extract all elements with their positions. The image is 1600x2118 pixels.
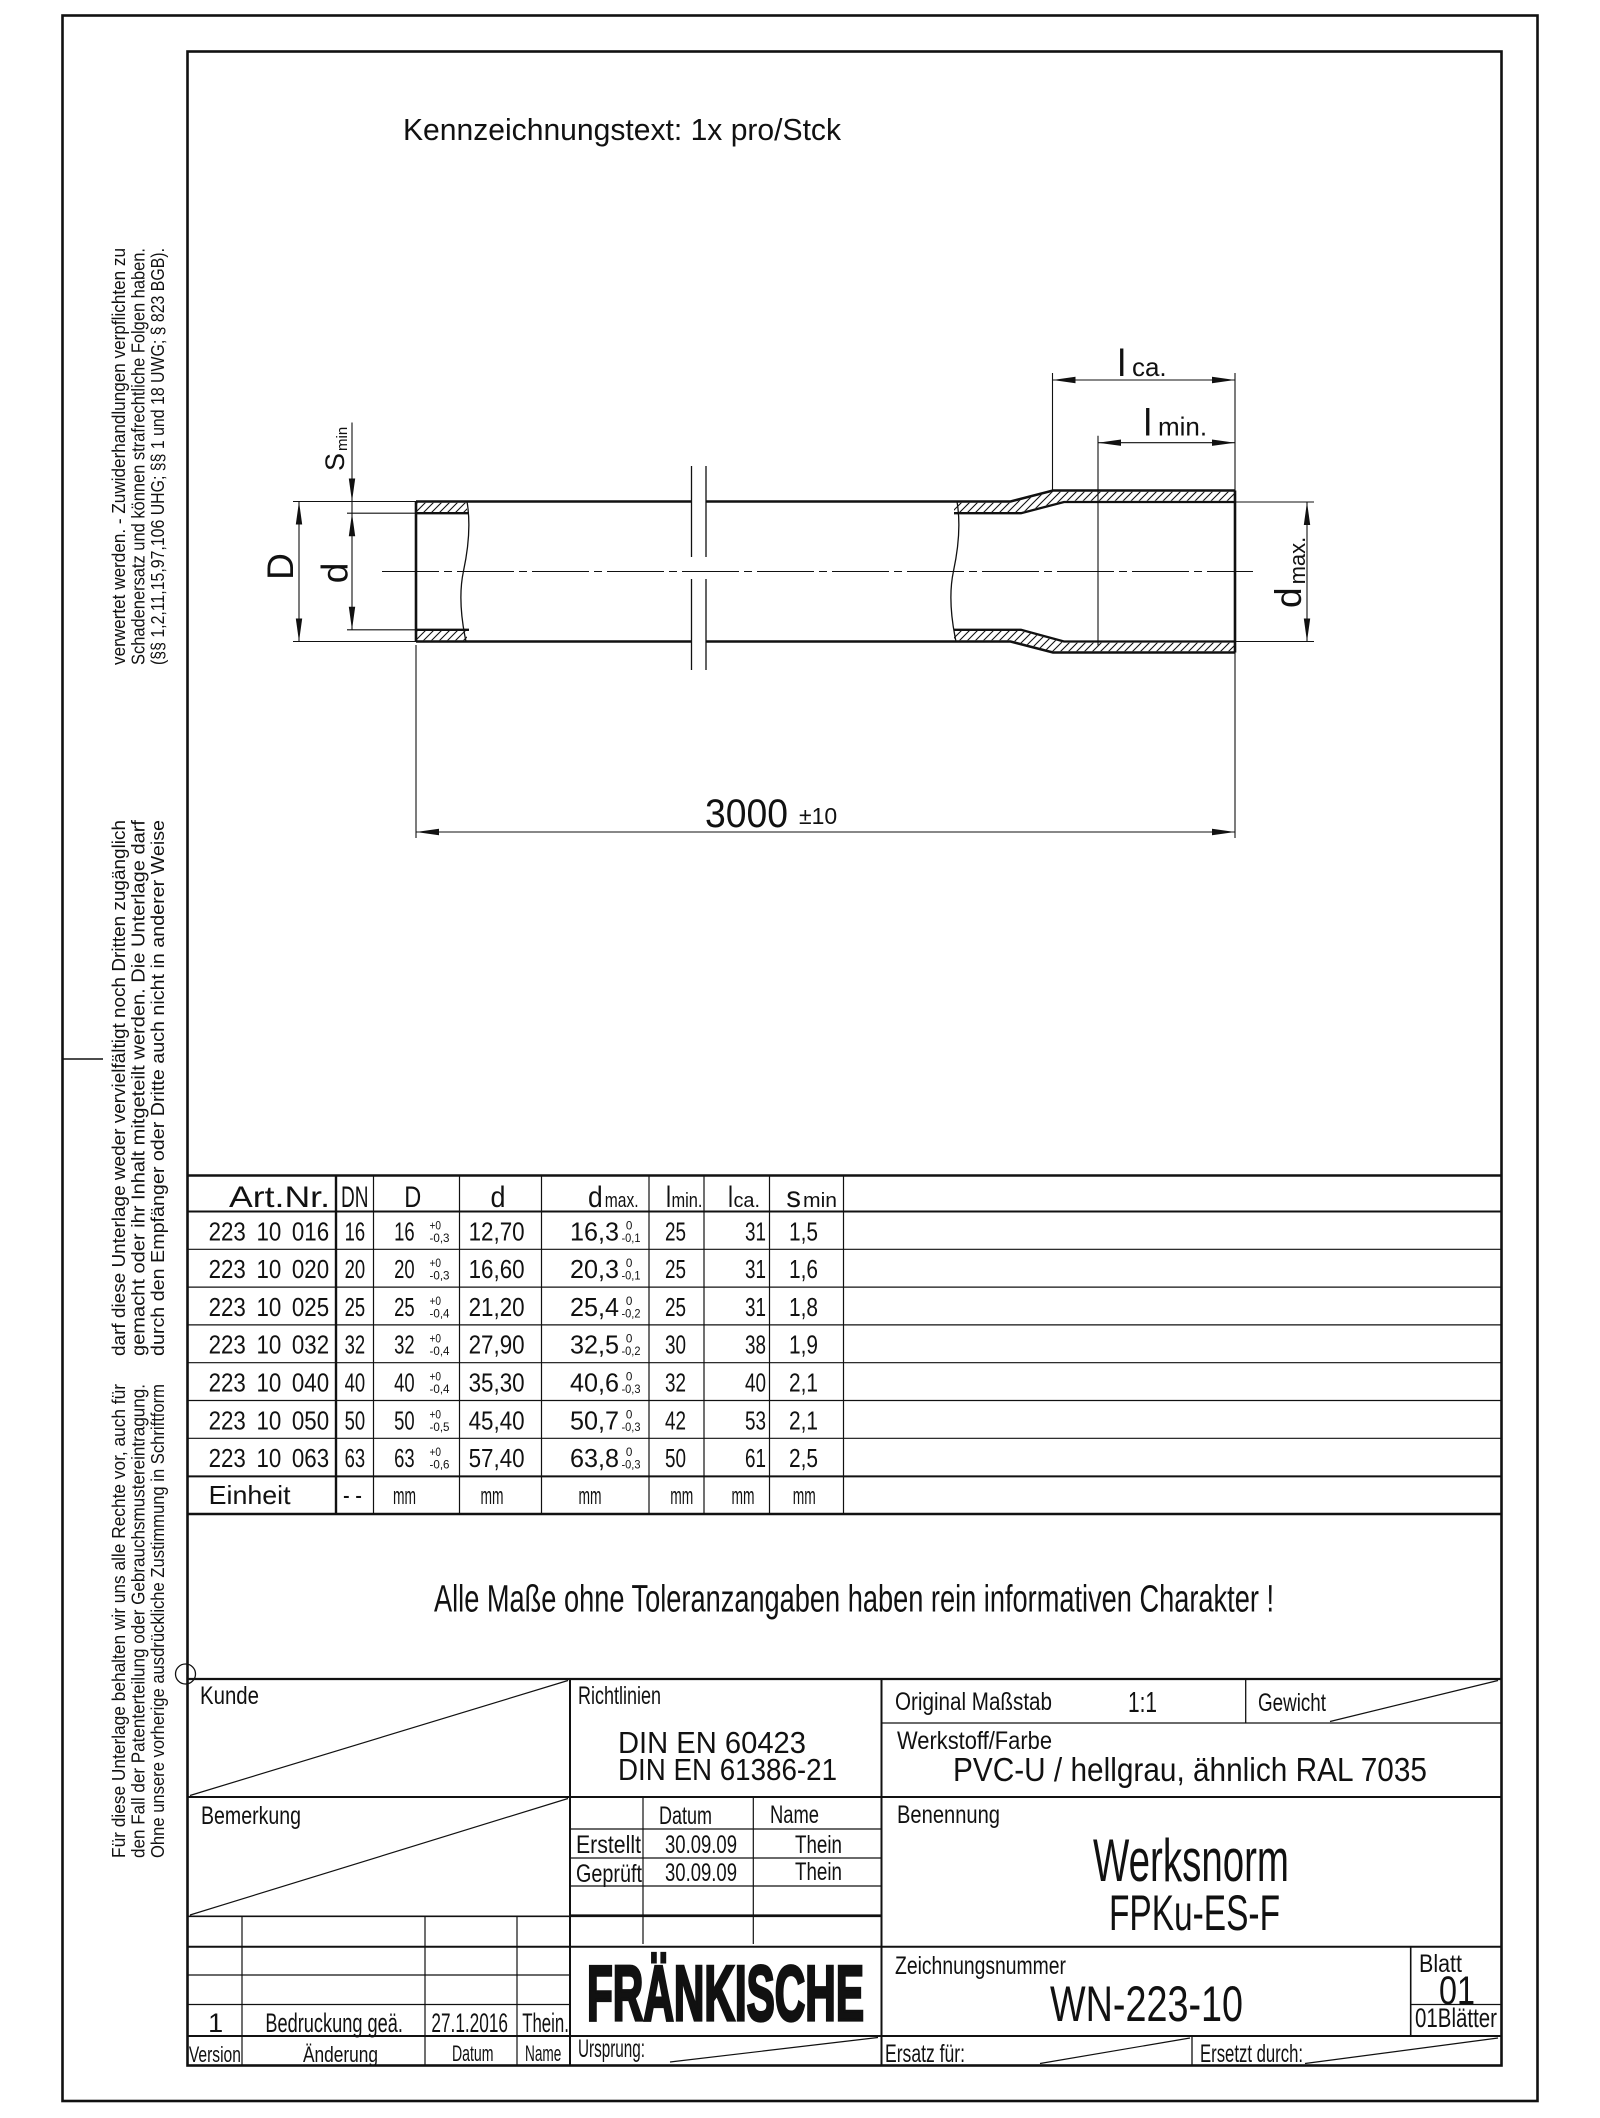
svg-text:-0,2: -0,2 [622,1306,641,1320]
svg-text:27,90: 27,90 [469,1330,525,1360]
svg-text:Ersatz für:: Ersatz für: [885,2040,965,2068]
svg-text:50: 50 [345,1405,366,1435]
svg-text:Einheit: Einheit [209,1480,292,1510]
svg-text:l: l [666,1181,671,1214]
svg-text:Kunde: Kunde [200,1682,259,1710]
svg-text:Für diese Unterlage behalten w: Für diese Unterlage behalten wir uns all… [108,1384,129,1858]
svg-text:PVC-U / hellgrau, ähnlich RAL: PVC-U / hellgrau, ähnlich RAL 7035 [953,1751,1427,1788]
svg-text:16: 16 [394,1216,415,1246]
svg-text:45,40: 45,40 [469,1405,525,1435]
svg-text:den Fall der Patenterteilung o: den Fall der Patenterteilung oder Gebrau… [128,1384,149,1858]
svg-text:FPKu-ES-F: FPKu-ES-F [1109,1885,1280,1941]
svg-text:32: 32 [345,1330,366,1360]
svg-text:verwertet werden. - Zuwiderhan: verwertet werden. - Zuwiderhandlungen ve… [108,248,129,665]
svg-text:31: 31 [745,1254,766,1284]
svg-text:(§§ 1,2,11,15,97,106 UHG; §§ 1: (§§ 1,2,11,15,97,106 UHG; §§ 1 und 18 UW… [147,248,168,665]
svg-text:WN-223-10: WN-223-10 [1050,1976,1243,2032]
svg-text:Name: Name [525,2041,561,2066]
svg-text:223 10 050: 223 10 050 [209,1405,330,1435]
svg-text:223 10 025: 223 10 025 [209,1292,330,1322]
svg-text:20: 20 [394,1254,415,1284]
svg-text:63: 63 [345,1443,366,1473]
svg-text:±10: ±10 [799,803,837,829]
svg-text:16,3: 16,3 [570,1216,619,1246]
svg-text:- -: - - [343,1480,362,1510]
svg-text:223 10 020: 223 10 020 [209,1254,330,1284]
svg-text:12,70: 12,70 [469,1216,525,1246]
svg-text:-0,1: -0,1 [622,1269,641,1283]
svg-text:mm: mm [481,1483,504,1510]
svg-text:Erstellt: Erstellt [576,1831,641,1859]
svg-text:Ersetzt durch:: Ersetzt durch: [1200,2040,1303,2068]
svg-text:63,8: 63,8 [570,1443,619,1473]
svg-text:D: D [404,1181,421,1214]
svg-text:32,5: 32,5 [570,1330,619,1360]
svg-text:-0,3: -0,3 [622,1458,641,1472]
svg-text:FRÄNKISCHE: FRÄNKISCHE [587,1949,864,2037]
svg-text:Art.Nr.: Art.Nr. [229,1181,330,1214]
svg-text:223 10 040: 223 10 040 [209,1368,330,1398]
svg-text:27.1.2016: 27.1.2016 [431,2008,508,2038]
svg-text:min.: min. [672,1190,703,1212]
svg-text:25: 25 [665,1216,686,1246]
svg-text:gemacht oder ihr Inhalt mitget: gemacht oder ihr Inhalt mitgeteilt werde… [128,819,149,1356]
svg-text:31: 31 [745,1216,766,1246]
svg-text:20: 20 [345,1254,366,1284]
svg-text:Datum: Datum [452,2041,494,2066]
svg-text:20,3: 20,3 [570,1254,619,1284]
svg-text:mm: mm [670,1483,693,1510]
svg-text:223 10 063: 223 10 063 [209,1443,330,1473]
svg-text:2,1: 2,1 [789,1405,818,1435]
svg-text:50: 50 [665,1443,686,1473]
svg-text:durch den Empfänger oder Dritt: durch den Empfänger oder Dritte auch nic… [147,820,168,1356]
svg-text:Alle Maße ohne Toleranzangaben: Alle Maße ohne Toleranzangaben haben rei… [434,1579,1274,1621]
svg-text:53: 53 [745,1405,766,1435]
svg-text:Benennung: Benennung [897,1801,1000,1829]
svg-text:01Blätter: 01Blätter [1415,2003,1497,2033]
svg-text:Gewicht: Gewicht [1258,1689,1326,1717]
svg-text:40: 40 [394,1368,415,1398]
svg-text:40,6: 40,6 [570,1368,619,1398]
svg-text:Original Maßstab: Original Maßstab [895,1688,1052,1716]
svg-text:mm: mm [393,1483,416,1510]
svg-text:50,7: 50,7 [570,1405,619,1435]
svg-text:1,8: 1,8 [789,1292,818,1322]
svg-text:Schadenersatz und können straf: Schadenersatz und können strafrechtliche… [128,248,149,665]
svg-text:3000: 3000 [705,792,788,836]
svg-text:30: 30 [665,1330,686,1360]
svg-text:Richtlinien: Richtlinien [578,1682,661,1710]
svg-text:Zeichnungsnummer: Zeichnungsnummer [895,1952,1066,1980]
svg-text:Name: Name [770,1801,819,1829]
svg-text:223 10 016: 223 10 016 [209,1216,330,1246]
svg-text:l: l [728,1181,733,1214]
svg-text:min: min [803,1190,837,1212]
svg-text:40: 40 [745,1368,766,1398]
svg-text:25: 25 [665,1292,686,1322]
svg-text:223 10 032: 223 10 032 [209,1330,330,1360]
svg-text:32: 32 [394,1330,415,1360]
svg-text:s: s [786,1181,801,1214]
svg-text:Version: Version [189,2042,241,2067]
svg-text:25: 25 [345,1292,366,1322]
svg-text:38: 38 [745,1330,766,1360]
svg-text:1:1: 1:1 [1128,1687,1157,1719]
svg-text:Datum: Datum [659,1802,712,1830]
svg-text:mm: mm [579,1483,602,1510]
svg-text:-0,4: -0,4 [430,1344,450,1358]
svg-text:-0,6: -0,6 [430,1458,450,1472]
svg-text:1,5: 1,5 [789,1216,818,1246]
svg-text:25: 25 [665,1254,686,1284]
svg-text:57,40: 57,40 [469,1443,525,1473]
svg-text:2,1: 2,1 [789,1368,818,1398]
svg-text:DN: DN [341,1181,369,1214]
svg-text:63: 63 [394,1443,415,1473]
svg-text:-0,5: -0,5 [430,1420,450,1434]
svg-text:2,5: 2,5 [789,1443,818,1473]
svg-text:ca.: ca. [734,1190,761,1212]
svg-text:d: d [315,563,356,584]
svg-text:mm: mm [793,1483,816,1510]
svg-text:1,9: 1,9 [789,1330,818,1360]
svg-text:25: 25 [394,1292,415,1322]
svg-text:-0,1: -0,1 [622,1231,641,1245]
svg-text:31: 31 [745,1292,766,1322]
svg-text:Thein: Thein [795,1831,842,1859]
svg-text:Bemerkung: Bemerkung [201,1802,301,1830]
svg-text:mm: mm [732,1483,755,1510]
svg-text:Thein.: Thein. [522,2008,569,2038]
svg-text:D: D [260,553,301,580]
svg-text:30.09.09: 30.09.09 [665,1831,737,1859]
svg-text:Ursprung:: Ursprung: [578,2035,645,2063]
svg-text:d: d [491,1181,506,1214]
svg-text:-0,2: -0,2 [622,1344,641,1358]
svg-text:1: 1 [208,2008,223,2038]
svg-text:max.: max. [605,1190,639,1212]
svg-text:Werksnorm: Werksnorm [1093,1827,1289,1894]
svg-text:-0,3: -0,3 [430,1269,450,1283]
svg-text:Thein: Thein [795,1858,842,1886]
svg-text:Kennzeichnungstext: 1x pro/S: Kennzeichnungstext: 1x pro/Stck [403,112,841,147]
svg-text:61: 61 [745,1443,766,1473]
svg-text:42: 42 [665,1405,686,1435]
svg-text:-0,4: -0,4 [430,1306,450,1320]
svg-text:50: 50 [394,1405,415,1435]
svg-text:-0,3: -0,3 [622,1382,641,1396]
svg-text:Bedruckung geä.: Bedruckung geä. [265,2008,403,2038]
svg-text:25,4: 25,4 [570,1292,619,1322]
svg-text:21,20: 21,20 [469,1292,525,1322]
svg-text:Geprüft: Geprüft [576,1860,642,1888]
svg-text:1,6: 1,6 [789,1254,818,1284]
svg-text:-0,3: -0,3 [430,1231,450,1245]
svg-text:30.09.09: 30.09.09 [665,1859,737,1887]
svg-text:-0,4: -0,4 [430,1382,450,1396]
svg-text:16,60: 16,60 [469,1254,525,1284]
svg-text:DIN EN 61386-21: DIN EN 61386-21 [618,1752,837,1787]
svg-text:32: 32 [665,1368,686,1398]
svg-text:35,30: 35,30 [469,1368,525,1398]
svg-text:-0,3: -0,3 [622,1420,641,1434]
svg-text:Änderung: Änderung [303,2042,378,2067]
svg-text:Ohne unsere vorherige ausdrück: Ohne unsere vorherige ausdrückliche Zust… [147,1384,168,1858]
svg-text:16: 16 [345,1216,366,1246]
svg-text:darf diese Unterlage weder ver: darf diese Unterlage weder vervielfältig… [108,820,129,1356]
svg-text:40: 40 [345,1368,366,1398]
svg-text:d: d [588,1181,603,1214]
